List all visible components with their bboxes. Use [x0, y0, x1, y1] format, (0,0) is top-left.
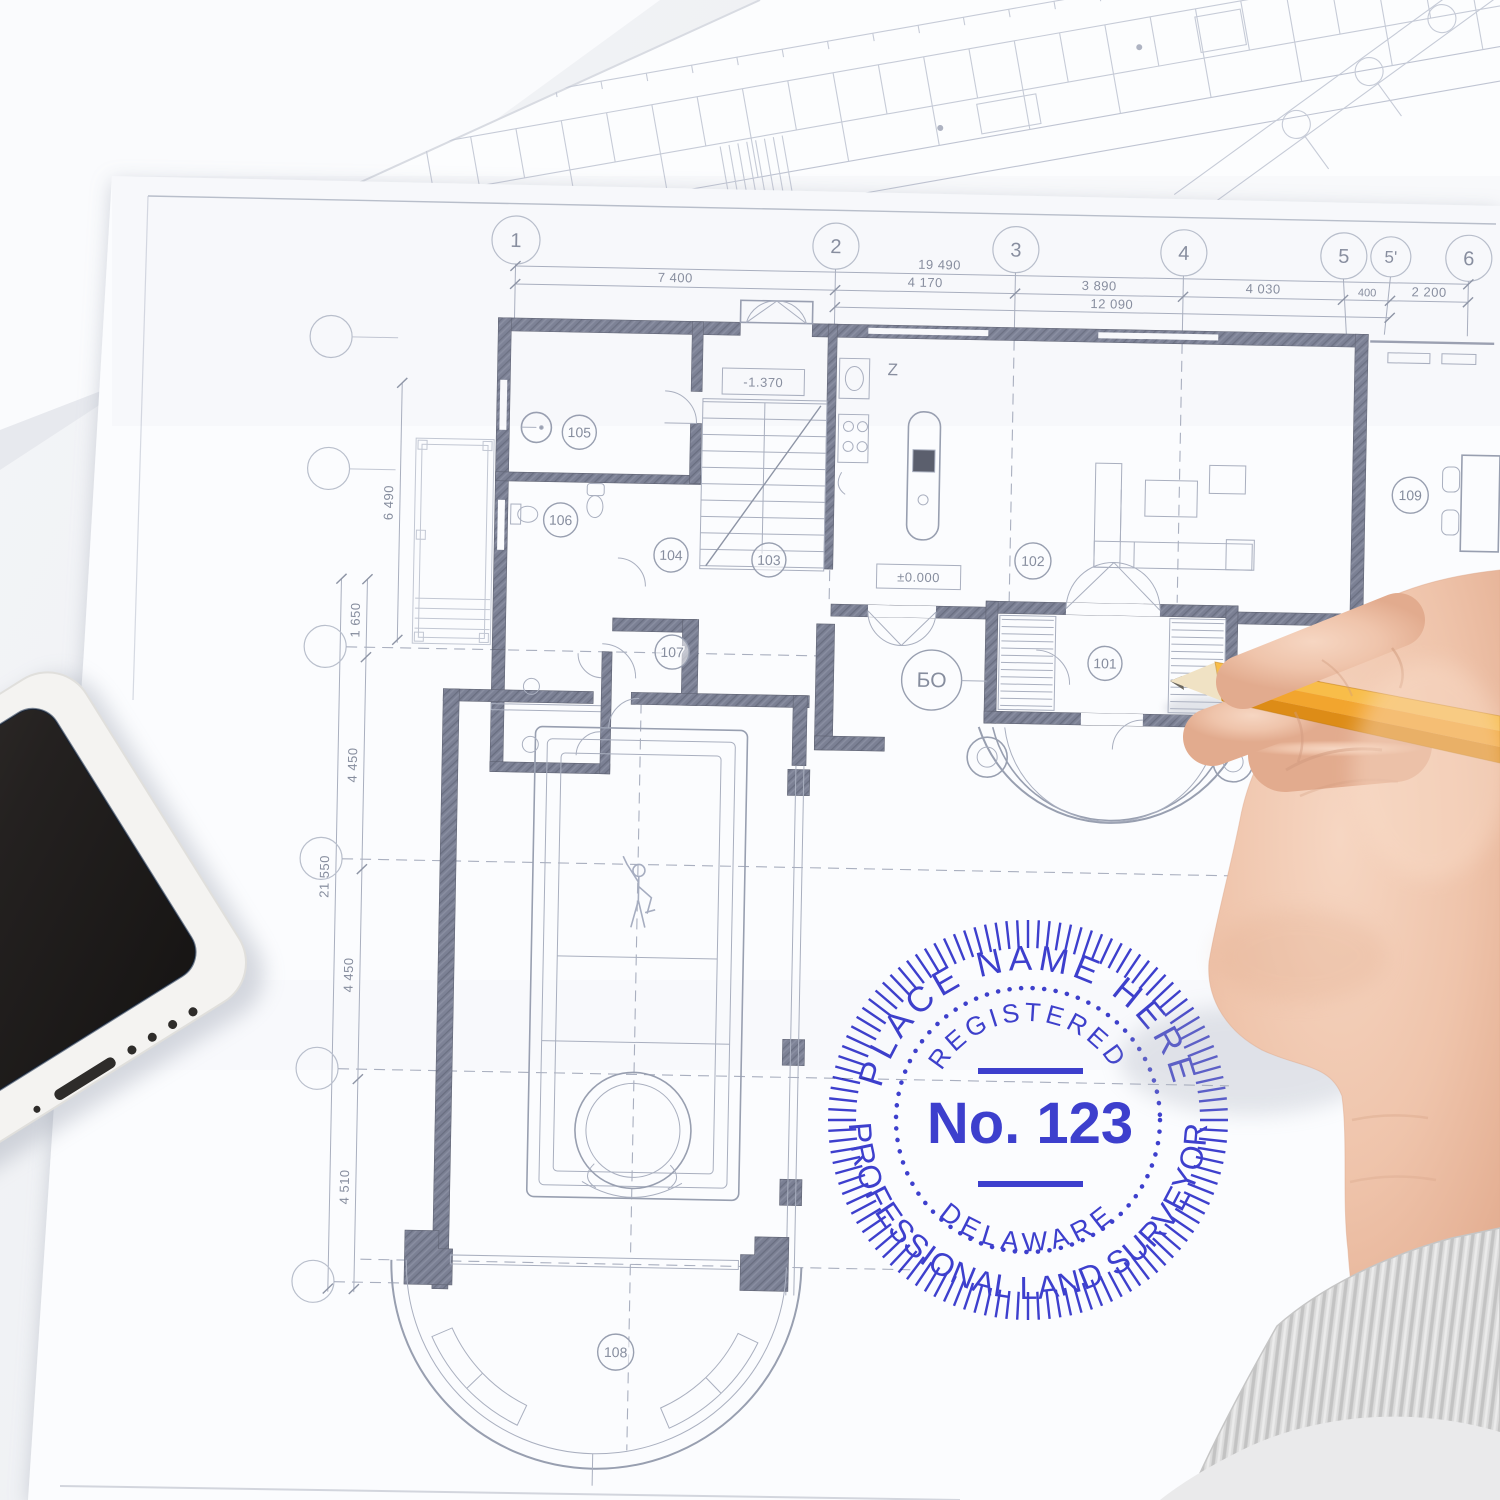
svg-text:102: 102 — [1021, 553, 1045, 569]
svg-text:±0.000: ±0.000 — [897, 569, 940, 585]
svg-text:101: 101 — [1093, 655, 1117, 671]
svg-text:107: 107 — [660, 644, 684, 660]
svg-text:21 550: 21 550 — [316, 855, 332, 898]
svg-text:4 510: 4 510 — [336, 1169, 352, 1204]
svg-text:1 650: 1 650 — [347, 602, 363, 637]
svg-text:6 490: 6 490 — [381, 485, 397, 520]
svg-text:105: 105 — [567, 424, 591, 440]
svg-text:109: 109 — [1398, 487, 1422, 503]
photo-scene: 1 2 3 4 5 5' 6 19 490 7 4 — [0, 0, 1500, 1500]
section-bubble-label: БО — [916, 669, 946, 693]
scene-svg: 1 2 3 4 5 5' 6 19 490 7 4 — [0, 0, 1500, 1500]
svg-text:106: 106 — [549, 512, 573, 528]
svg-text:108: 108 — [604, 1344, 628, 1360]
stamp-number: No. 123 — [927, 1091, 1133, 1156]
svg-text:104: 104 — [659, 547, 683, 563]
svg-text:4 450: 4 450 — [345, 747, 361, 782]
svg-text:103: 103 — [757, 552, 781, 568]
